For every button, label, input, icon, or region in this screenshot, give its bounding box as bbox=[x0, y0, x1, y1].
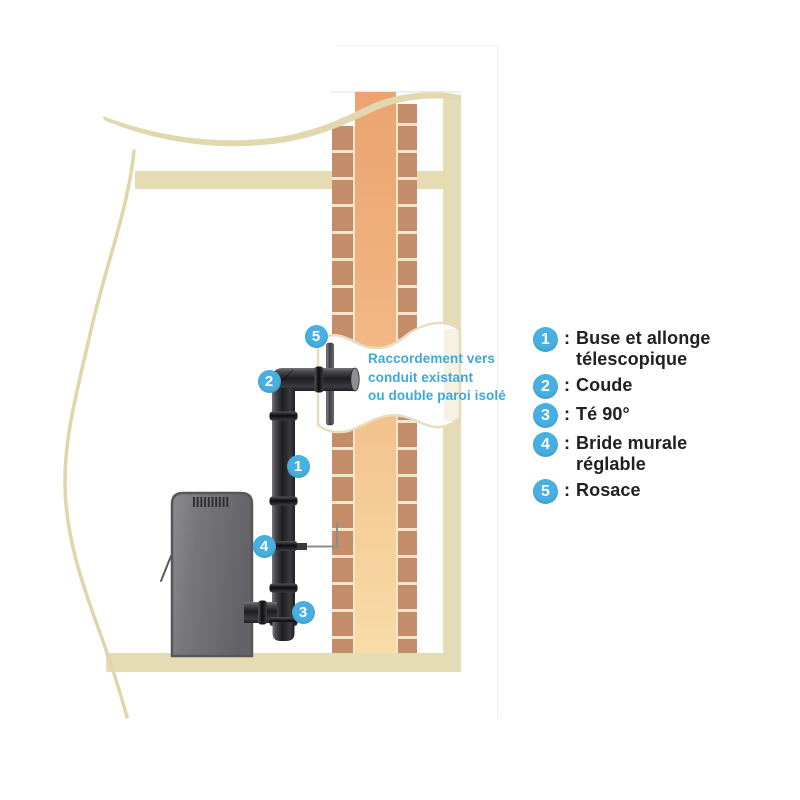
legend-separator: : bbox=[564, 480, 570, 501]
legend-label-rosace: Rosace bbox=[576, 480, 641, 501]
floor-slab bbox=[106, 653, 461, 672]
tee-stub-ring bbox=[258, 601, 267, 625]
legend-badge-2: 2 bbox=[533, 374, 558, 399]
marker-5-rosace: 5 bbox=[305, 325, 328, 348]
legend-item-coude: 2 : Coude bbox=[533, 374, 711, 399]
connection-annotation: Raccordement vers conduit existant ou do… bbox=[368, 350, 518, 406]
legend-item-te: 3 : Té 90° bbox=[533, 403, 711, 428]
pipe-ring-horizontal bbox=[315, 367, 324, 393]
legend: 1 : Buse et allonge télescopique 2 : Cou… bbox=[533, 327, 711, 504]
legend-separator: : bbox=[564, 328, 570, 349]
marker-3-te: 3 bbox=[292, 601, 315, 624]
pellet-stove bbox=[161, 493, 252, 656]
legend-item-buse: 1 : Buse et allonge télescopique bbox=[533, 327, 711, 370]
pipe-ring-lower bbox=[270, 584, 298, 593]
pipe-ring-upper bbox=[270, 412, 298, 421]
legend-separator: : bbox=[564, 375, 570, 396]
tee-bottom-cap bbox=[273, 622, 295, 641]
pipe-end-cap bbox=[351, 368, 359, 391]
legend-badge-5: 5 bbox=[533, 479, 558, 504]
legend-badge-3: 3 bbox=[533, 403, 558, 428]
legend-badge-4: 4 bbox=[533, 432, 558, 457]
stove-handle bbox=[161, 556, 171, 581]
legend-label-coude: Coude bbox=[576, 375, 633, 396]
stove-body bbox=[172, 493, 252, 656]
legend-item-rosace: 5 : Rosace bbox=[533, 479, 711, 504]
wall-bracket-rod bbox=[297, 523, 337, 547]
marker-2-coude: 2 bbox=[258, 370, 281, 393]
legend-separator: : bbox=[564, 433, 570, 454]
legend-badge-1: 1 bbox=[533, 327, 558, 352]
legend-separator: : bbox=[564, 404, 570, 425]
marker-4-bride: 4 bbox=[253, 535, 276, 558]
legend-item-bride: 4 : Bride murale réglable bbox=[533, 432, 711, 475]
left-wall-break-line bbox=[65, 151, 134, 717]
pipe-ring-middle bbox=[270, 497, 298, 506]
marker-1-buse: 1 bbox=[287, 455, 310, 478]
installation-diagram: Raccordement vers conduit existant ou do… bbox=[0, 0, 800, 800]
legend-label-buse: Buse et allonge télescopique bbox=[576, 328, 711, 370]
legend-label-bride: Bride murale réglable bbox=[576, 433, 687, 475]
legend-label-te: Té 90° bbox=[576, 404, 630, 425]
